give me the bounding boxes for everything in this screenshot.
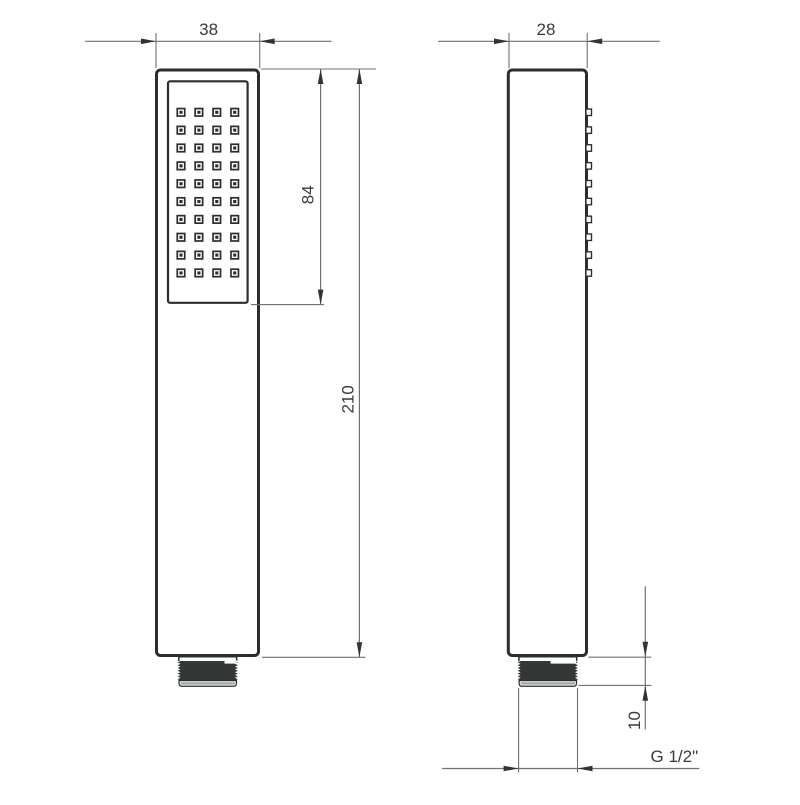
svg-text:38: 38 (199, 20, 218, 39)
svg-text:84: 84 (299, 185, 318, 204)
svg-text:28: 28 (537, 20, 556, 39)
svg-text:210: 210 (338, 385, 357, 413)
svg-text:G 1/2": G 1/2" (651, 747, 699, 766)
svg-text:10: 10 (625, 711, 644, 730)
